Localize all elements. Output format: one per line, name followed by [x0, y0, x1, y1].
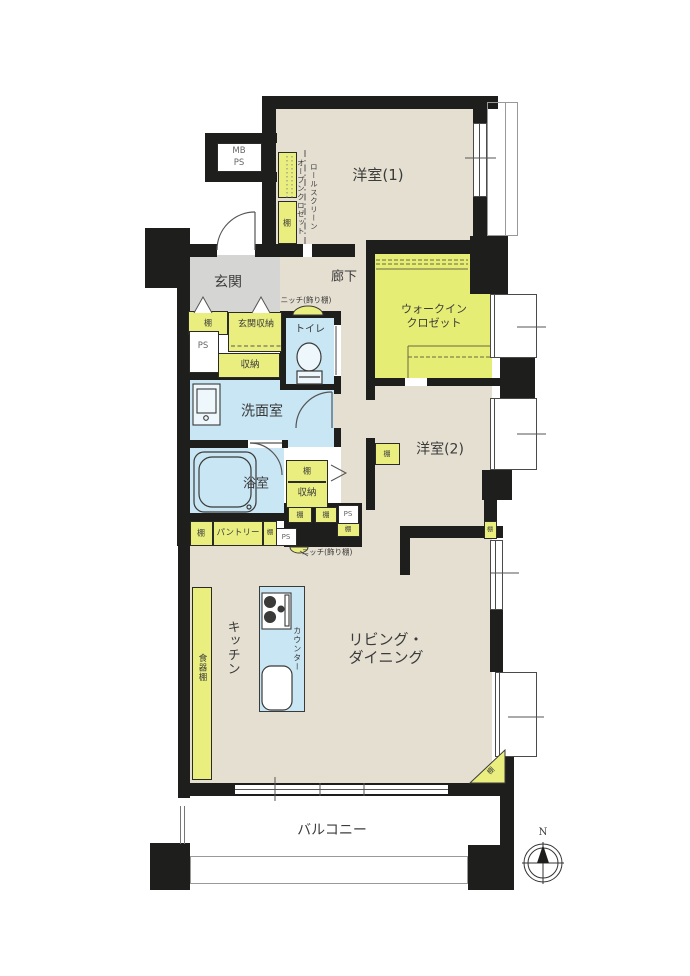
floor-bathroom [190, 448, 284, 513]
label-entrance-storage: 玄関収納 [238, 320, 274, 331]
balcony-sliding-window-rail [235, 789, 448, 790]
window-ld-east [490, 540, 503, 610]
wall-left-kitchen [178, 546, 190, 798]
wall-balcony-right-block [468, 845, 514, 890]
compass-north-label: N [539, 827, 548, 839]
wall-ld-east [490, 610, 503, 672]
label-shelf-open-closet: 棚 [283, 218, 291, 227]
label-storage-hall-closet: 収納 [297, 487, 316, 498]
room-label-living: リビング・ ダイニング [348, 631, 423, 666]
wall-east-chunk2 [482, 470, 512, 500]
label-cupboard: 食器棚 [197, 654, 207, 683]
window-ld-east-glass [495, 540, 496, 610]
ps-box-entrance [189, 331, 219, 373]
label-ps-meter: PS [234, 158, 245, 168]
wall-mbps-bottom [205, 172, 277, 182]
room-label-wic-line2: クロゼット [407, 318, 462, 331]
wall-western1-bottom-b [312, 244, 355, 257]
label-shelf-cluster1: 棚 [297, 511, 304, 519]
label-open-closet: オープンクロゼット [296, 159, 305, 236]
bay-window-western2-glass [494, 398, 495, 470]
wall-northeast-chunk [470, 236, 508, 294]
room-label-wic-line1: ウォークイン [401, 304, 467, 317]
label-pantry: パントリー [217, 528, 260, 538]
room-label-bathroom: 浴室 [243, 476, 269, 491]
wall-entrance-chunk [145, 228, 190, 288]
toilet-door-gap [334, 325, 341, 376]
label-ps-cluster: PS [344, 510, 353, 518]
wall-wic-top [366, 240, 473, 254]
entrance-storage-box [228, 312, 282, 352]
wall-toilet-right-top [334, 311, 341, 325]
wall-balcony-left-block [150, 843, 190, 890]
label-mb: MB [232, 146, 245, 156]
hall-closet-divider [288, 481, 326, 483]
room-label-kitchen: キッチン [224, 620, 239, 676]
label-niche-lower: ニッチ(飾り棚) [302, 549, 353, 558]
room-label-corridor: 廊下 [331, 269, 357, 284]
wall-ld-bottom-right [448, 783, 510, 796]
bath-door-gap [248, 440, 282, 448]
room-label-entrance: 玄関 [214, 275, 242, 292]
wall-bath-top-left [184, 440, 248, 448]
label-storage-washroom: 収納 [240, 359, 259, 370]
wall-entrance-top-right [255, 244, 276, 257]
floor-hall-vestibule [341, 315, 366, 505]
roof-outline-line [505, 102, 506, 236]
label-shelf-pantry-left: 棚 [197, 528, 205, 537]
roof-outline [487, 102, 518, 236]
label-ps-kitchen: PS [282, 533, 291, 541]
bay-window-western2 [490, 398, 537, 470]
compass-icon [522, 842, 564, 884]
wall-wic-bottom [373, 378, 503, 386]
label-shelf-cluster3: 棚 [345, 526, 352, 534]
label-shelf-entrance: 棚 [204, 318, 212, 327]
bay-window-wic [490, 294, 537, 358]
room-label-washroom: 洗面室 [241, 404, 283, 421]
room-label-living-line2: ダイニング [348, 649, 423, 667]
wall-western1-bottom-a [276, 244, 303, 257]
bay-window-wic-glass [494, 294, 495, 358]
label-ps-entrance: PS [198, 341, 209, 351]
label-shelf-hall-closet: 棚 [303, 466, 311, 475]
wall-bath-top-right [282, 440, 288, 448]
wall-toilet-bottom [280, 384, 341, 390]
room-label-balcony: バルコニー [297, 823, 367, 840]
entrance-door [217, 212, 255, 250]
label-counter: カウンター [292, 627, 301, 672]
floor-plan: 洋室(1) MB PS ロールスクリーン オープンクロゼット 棚 玄関 廊下 ニ… [0, 0, 690, 976]
window-western1-east [473, 123, 487, 197]
floor-corridor [276, 257, 366, 315]
label-niche-upper: ニッチ(飾り棚) [281, 297, 332, 306]
balcony-divider [180, 806, 185, 844]
washroom-door-opening [334, 394, 341, 428]
wall-western1-top [262, 96, 498, 109]
wic-door-gap [405, 378, 427, 386]
wall-entrance-top-left [188, 244, 217, 257]
label-shelf-cluster2: 棚 [323, 511, 330, 519]
room-label-western1: 洋室(1) [352, 167, 403, 185]
room-label-toilet: トイレ [295, 324, 325, 336]
bay-window-ld [495, 672, 537, 757]
label-roll-screen: ロールスクリーン [309, 163, 318, 231]
bay-window-ld-glass [499, 672, 500, 757]
wall-western1-bottom-gap [303, 244, 312, 257]
wall-toilet-top [280, 311, 340, 318]
wall-western2-stub [400, 526, 410, 575]
wall-ld-bottom-left [178, 783, 235, 796]
wall-western1-right-top [473, 109, 487, 123]
label-shelf-western2: 棚 [384, 450, 391, 458]
wall-between-bays [500, 358, 535, 398]
floor-western1-door-opening [355, 244, 366, 257]
cupboard-strip [192, 587, 212, 780]
wall-vestibule-east-lower [366, 438, 375, 510]
room-label-living-line1: リビング・ [348, 631, 423, 649]
wall-washroom-east-bottom [334, 428, 341, 447]
wall-bath-bottom [184, 513, 298, 521]
window-western1-east-glass [479, 123, 480, 197]
balcony-rail [190, 856, 468, 884]
label-shelf-pantry-right: 棚 [267, 529, 274, 537]
open-closet-strip-upper [278, 152, 297, 198]
label-shelf-ld-east: 棚 [487, 526, 493, 533]
room-label-western2: 洋室(2) [416, 442, 464, 459]
